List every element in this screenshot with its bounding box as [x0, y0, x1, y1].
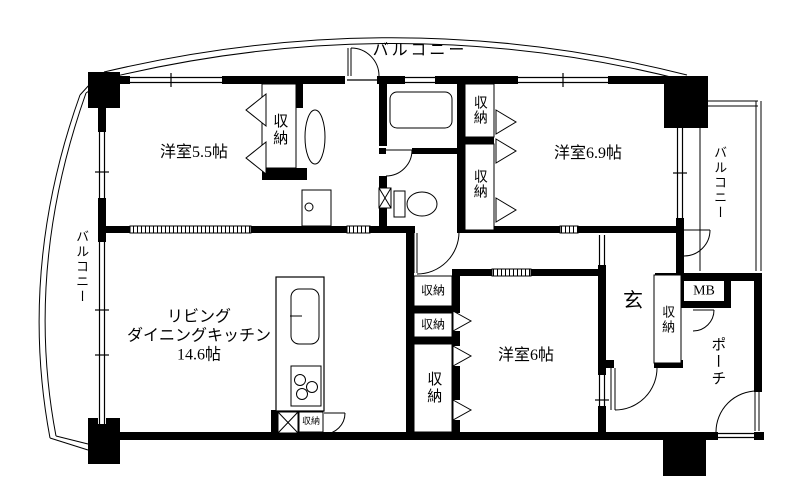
room-6-9-label: 洋室6.9帖 — [554, 145, 622, 163]
balcony-right-label: バルコニー — [712, 146, 726, 221]
ldk-label-line1: リビング — [127, 308, 271, 327]
balcony-top-label: バルコニー — [373, 42, 468, 60]
closet-6-9-upper-label: 収納 — [471, 95, 486, 125]
room-6-label: 洋室6帖 — [498, 347, 554, 365]
corner-columns — [88, 72, 708, 476]
closet-5-5-label: 収納 — [271, 113, 288, 147]
room-5-5-label: 洋室5.5帖 — [160, 144, 228, 162]
meter-box-label: MB — [693, 283, 715, 298]
closet-kitchen-label: 収納 — [302, 417, 320, 427]
floor-plan: バルコニー バルコニー バルコニー ポーチ 洋室5.5帖 洋室6.9帖 洋室6帖… — [0, 0, 800, 494]
washing-machine — [302, 190, 331, 226]
ldk-label-line3: 14.6帖 — [127, 346, 271, 365]
kitchen-counter — [276, 277, 324, 411]
toilet-fixture — [394, 191, 437, 217]
sliding-door-hatches — [130, 226, 578, 276]
closet-entrance-label: 収納 — [660, 305, 674, 335]
closet-mid-b-label: 収納 — [421, 318, 445, 331]
folding-door-box — [379, 188, 391, 208]
vanity-sink-fixture — [305, 110, 325, 164]
pipe-space-box — [278, 412, 298, 433]
porch-label: ポーチ — [709, 337, 726, 388]
ldk-label-line2: ダイニングキッチン — [127, 327, 271, 346]
bathtub-fixture — [390, 92, 452, 128]
floor-plan-drawing — [0, 0, 800, 494]
closet-mid-c-label: 収納 — [425, 371, 442, 405]
closet-6-9-lower-label: 収納 — [471, 169, 486, 199]
entrance-label: 玄 — [623, 290, 643, 312]
closet-mid-a-label: 収納 — [421, 284, 445, 297]
ldk-label: リビング ダイニングキッチン 14.6帖 — [127, 308, 271, 365]
balcony-outline-right — [700, 101, 761, 271]
balcony-left-label: バルコニー — [74, 230, 88, 305]
